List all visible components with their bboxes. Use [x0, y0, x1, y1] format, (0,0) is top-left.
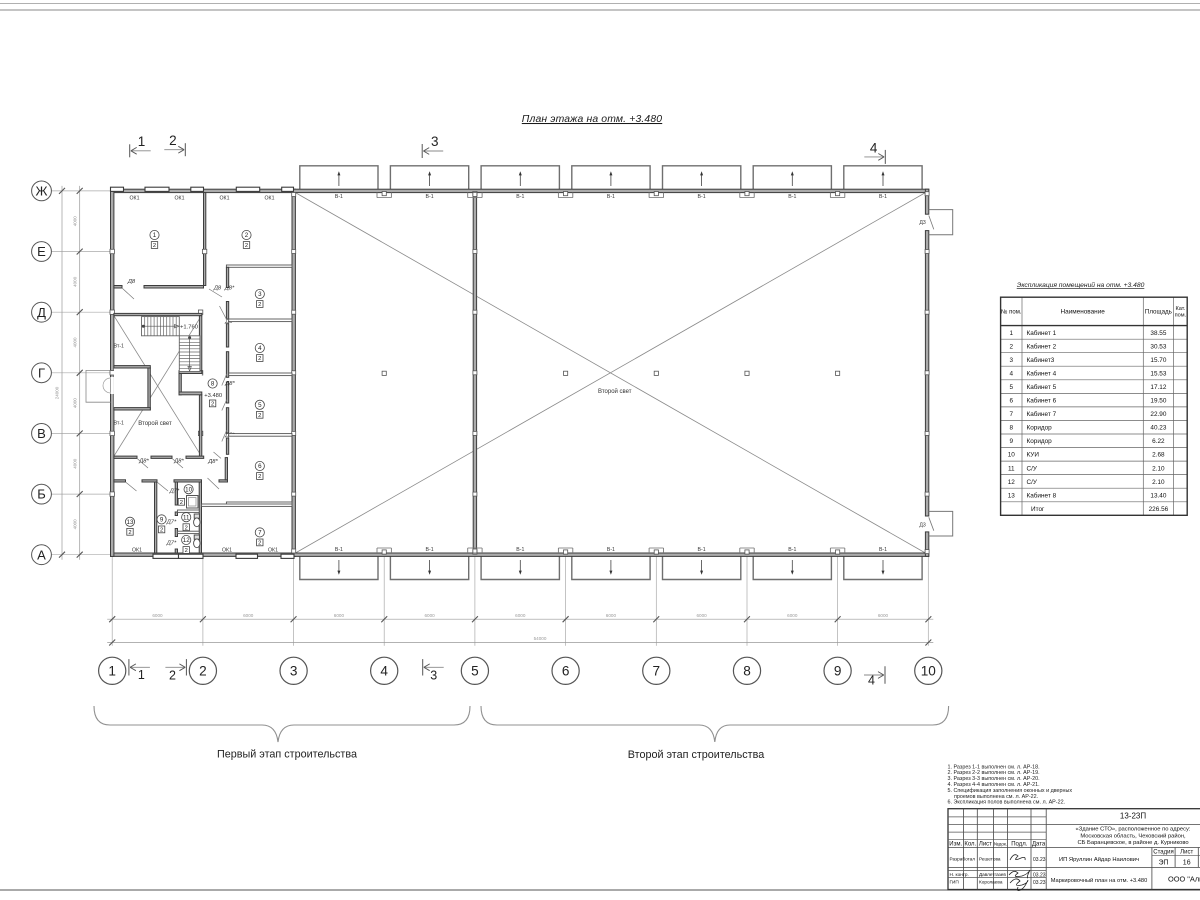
svg-text:+1.760: +1.760 — [180, 325, 198, 331]
svg-text:Второй свет: Второй свет — [138, 420, 172, 427]
svg-text:В-1: В-1 — [335, 194, 343, 200]
svg-text:4000: 4000 — [72, 276, 77, 287]
svg-text:пом.: пом. — [1175, 313, 1187, 319]
svg-text:4: 4 — [868, 674, 875, 688]
svg-text:5: 5 — [471, 664, 479, 679]
svg-text:Д7*: Д7* — [169, 489, 180, 495]
svg-text:Второй свет: Второй свет — [598, 388, 632, 395]
svg-text:Е: Е — [37, 244, 46, 259]
svg-text:Кабинет 6: Кабинет 6 — [1027, 397, 1057, 405]
svg-text:3: 3 — [290, 664, 298, 679]
svg-text:2: 2 — [258, 541, 261, 547]
svg-text:В-1: В-1 — [879, 194, 887, 200]
svg-text:4000: 4000 — [72, 458, 77, 469]
svg-text:В-1: В-1 — [698, 547, 706, 553]
svg-text:Разработал: Разработал — [950, 857, 976, 862]
svg-text:Д8: Д8 — [213, 285, 222, 291]
svg-text:Московская область, Чеховский: Московская область, Чеховский район, — [1080, 832, 1186, 839]
svg-text:9: 9 — [834, 664, 842, 679]
svg-text:16: 16 — [1183, 859, 1191, 866]
svg-text:В-1: В-1 — [879, 547, 887, 553]
svg-text:ОК1: ОК1 — [130, 195, 140, 201]
svg-text:12: 12 — [1008, 479, 1016, 486]
svg-text:«Здание СТО», расположенное по: «Здание СТО», расположенное по адресу: — [1075, 827, 1190, 833]
svg-text:В-1: В-1 — [426, 194, 434, 200]
svg-text:Кабинет 7: Кабинет 7 — [1027, 410, 1057, 418]
svg-text:2.10: 2.10 — [1152, 465, 1165, 472]
svg-text:2: 2 — [211, 402, 214, 408]
svg-text:03.23: 03.23 — [1033, 880, 1046, 886]
svg-text:В-1: В-1 — [788, 194, 796, 200]
svg-text:Д: Д — [37, 305, 46, 320]
svg-text:Вт-1: Вт-1 — [114, 421, 124, 427]
svg-text:10: 10 — [921, 664, 937, 679]
svg-text:Второй этап строительства: Второй этап строительства — [628, 749, 764, 761]
svg-text:2: 2 — [153, 243, 156, 249]
svg-text:6.22: 6.22 — [1152, 438, 1165, 445]
svg-text:2: 2 — [245, 243, 248, 249]
svg-text:№док.: №док. — [994, 841, 1007, 846]
svg-text:Коридор: Коридор — [1027, 438, 1053, 445]
svg-text:ООО "Аль: ООО "Аль — [1168, 875, 1200, 884]
svg-text:5: 5 — [1010, 384, 1014, 391]
svg-text:8: 8 — [743, 664, 751, 679]
svg-text:В-1: В-1 — [516, 194, 524, 200]
svg-text:Площадь: Площадь — [1145, 309, 1172, 316]
svg-text:Кабинет 1: Кабинет 1 — [1027, 329, 1057, 337]
svg-text:План этажа на отм. +3.480: План этажа на отм. +3.480 — [522, 114, 663, 125]
svg-text:6000: 6000 — [787, 613, 798, 618]
svg-text:3: 3 — [430, 669, 437, 683]
svg-text:Вт-1: Вт-1 — [114, 343, 124, 349]
svg-text:Решетова: Решетова — [979, 857, 1001, 862]
svg-text:4: 4 — [258, 345, 262, 352]
svg-text:2: 2 — [258, 413, 261, 419]
svg-text:Маркировочный план на отм. +3.: Маркировочный план на отм. +3.480 — [1051, 877, 1148, 884]
svg-text:11: 11 — [183, 514, 190, 521]
svg-text:2: 2 — [160, 528, 163, 534]
svg-text:2: 2 — [180, 500, 183, 506]
svg-text:6000: 6000 — [878, 613, 889, 618]
svg-text:ЭП: ЭП — [1158, 859, 1168, 866]
svg-text:10: 10 — [1008, 452, 1016, 459]
svg-text:Наименование: Наименование — [1061, 309, 1106, 316]
svg-text:4: 4 — [870, 141, 878, 156]
svg-text:Д3: Д3 — [919, 523, 926, 529]
svg-text:6000: 6000 — [152, 613, 163, 618]
svg-text:2: 2 — [1010, 343, 1014, 350]
svg-text:С/У: С/У — [1027, 479, 1038, 486]
svg-text:Давлетгазев: Давлетгазев — [979, 872, 1006, 877]
svg-text:2: 2 — [128, 530, 131, 536]
svg-text:Н. контр.: Н. контр. — [950, 872, 969, 877]
svg-text:4000: 4000 — [72, 519, 77, 530]
svg-text:Б: Б — [37, 487, 46, 502]
svg-text:В-1: В-1 — [516, 547, 524, 553]
svg-text:Коридор: Коридор — [1027, 425, 1053, 432]
svg-text:В-1: В-1 — [788, 547, 796, 553]
svg-text:Кабинет 2: Кабинет 2 — [1027, 342, 1057, 350]
svg-text:Лист: Лист — [1180, 849, 1193, 855]
svg-text:7: 7 — [258, 530, 262, 537]
svg-text:2: 2 — [169, 668, 176, 682]
svg-text:Экспликация помещений на отм.: Экспликация помещений на отм. +3.480 — [1017, 281, 1145, 289]
svg-text:4000: 4000 — [72, 216, 77, 227]
svg-text:24000: 24000 — [55, 386, 60, 399]
svg-text:ИП Яруллин Айдар Наилович: ИП Яруллин Айдар Наилович — [1059, 856, 1139, 863]
svg-text:13-23П: 13-23П — [1120, 812, 1146, 821]
svg-text:17.12: 17.12 — [1150, 384, 1166, 391]
svg-text:В-1: В-1 — [335, 547, 343, 553]
svg-text:1: 1 — [138, 134, 146, 149]
svg-text:2.10: 2.10 — [1152, 479, 1165, 486]
svg-text:Итог: Итог — [1031, 506, 1045, 513]
svg-text:Д8: Д8 — [127, 279, 136, 285]
svg-text:13.40: 13.40 — [1150, 492, 1166, 499]
svg-text:Г: Г — [38, 365, 45, 380]
svg-text:1: 1 — [108, 664, 116, 679]
svg-text:Д7*: Д7* — [166, 541, 177, 547]
svg-text:Первый этап строительства: Первый этап строительства — [217, 749, 357, 761]
svg-text:13: 13 — [1008, 492, 1016, 499]
svg-text:12: 12 — [183, 537, 190, 544]
svg-text:4000: 4000 — [72, 398, 77, 409]
svg-text:Кат.: Кат. — [1176, 306, 1186, 312]
svg-text:Д8*: Д8* — [207, 459, 218, 465]
svg-text:30.53: 30.53 — [1150, 343, 1166, 350]
svg-text:4: 4 — [380, 664, 388, 679]
svg-text:Ж: Ж — [35, 184, 47, 199]
svg-text:1: 1 — [138, 668, 145, 682]
svg-text:Лист: Лист — [979, 841, 992, 847]
svg-text:6: 6 — [1010, 398, 1014, 405]
svg-text:2: 2 — [185, 525, 188, 531]
svg-text:2: 2 — [258, 474, 261, 480]
svg-text:11: 11 — [1008, 465, 1015, 472]
svg-text:№ пом.: № пом. — [1001, 309, 1022, 316]
svg-text:6: 6 — [258, 463, 262, 470]
svg-text:Королаева: Королаева — [979, 880, 1003, 885]
svg-text:Кабинет 8: Кабинет 8 — [1027, 491, 1057, 499]
svg-text:С/У: С/У — [1027, 465, 1038, 472]
svg-text:9: 9 — [1010, 438, 1014, 445]
svg-text:2: 2 — [199, 664, 207, 679]
svg-text:2: 2 — [185, 548, 188, 554]
svg-text:КУИ: КУИ — [1027, 452, 1040, 459]
svg-text:226.56: 226.56 — [1149, 506, 1169, 513]
svg-text:2: 2 — [258, 302, 261, 308]
svg-text:38.55: 38.55 — [1150, 330, 1166, 337]
svg-text:4000: 4000 — [72, 337, 77, 348]
svg-text:10: 10 — [185, 486, 192, 493]
svg-text:Кабинет 5: Кабинет 5 — [1027, 383, 1057, 391]
svg-text:6000: 6000 — [515, 613, 526, 618]
svg-text:Д8*: Д8* — [224, 285, 235, 291]
svg-text:5: 5 — [258, 402, 262, 409]
svg-text:2: 2 — [258, 356, 261, 362]
svg-text:ОК1: ОК1 — [265, 195, 275, 201]
svg-text:8: 8 — [1010, 425, 1014, 432]
svg-text:13: 13 — [127, 519, 134, 526]
svg-text:54000: 54000 — [534, 636, 547, 641]
svg-text:03.23: 03.23 — [1033, 857, 1046, 863]
svg-text:1: 1 — [153, 232, 157, 239]
svg-text:ОК1: ОК1 — [220, 195, 230, 201]
svg-text:Д3: Д3 — [919, 220, 926, 226]
svg-text:15.53: 15.53 — [1150, 370, 1166, 377]
svg-text:Стадия: Стадия — [1153, 849, 1173, 855]
svg-text:6: 6 — [562, 664, 570, 679]
svg-text:Д7*: Д7* — [166, 520, 177, 526]
svg-text:СБ Баранцевское, в районе д. К: СБ Баранцевское, в районе д. Курниково — [1077, 839, 1188, 846]
svg-text:Кабинет3: Кабинет3 — [1027, 356, 1055, 364]
svg-text:2.68: 2.68 — [1152, 452, 1165, 459]
svg-text:Д8*: Д8* — [224, 381, 235, 387]
svg-text:19.50: 19.50 — [1150, 398, 1166, 405]
svg-text:3: 3 — [258, 291, 262, 298]
svg-text:6000: 6000 — [334, 613, 345, 618]
svg-text:ОК1: ОК1 — [132, 548, 142, 554]
svg-text:Кабинет 4: Кабинет 4 — [1027, 369, 1057, 377]
svg-text:3: 3 — [431, 134, 439, 149]
svg-text:9: 9 — [160, 517, 164, 524]
svg-text:В-1: В-1 — [426, 547, 434, 553]
svg-text:В-1: В-1 — [607, 547, 615, 553]
svg-text:Д8*: Д8* — [173, 459, 184, 465]
svg-text:ГИП: ГИП — [950, 880, 959, 885]
svg-text:ОК1: ОК1 — [175, 195, 185, 201]
svg-text:А: А — [37, 547, 46, 562]
svg-text:В-1: В-1 — [698, 194, 706, 200]
svg-text:22.90: 22.90 — [1150, 411, 1166, 418]
svg-text:2: 2 — [245, 232, 249, 239]
svg-text:В: В — [37, 426, 46, 441]
svg-text:8: 8 — [211, 381, 215, 388]
svg-text:6. Экспликация полов выполнена: 6. Экспликация полов выполнена см. л. АР… — [948, 800, 1066, 806]
svg-text:+3.480: +3.480 — [204, 393, 222, 399]
svg-text:3: 3 — [1010, 357, 1014, 364]
svg-text:6000: 6000 — [424, 613, 435, 618]
svg-text:6000: 6000 — [696, 613, 707, 618]
svg-text:Изм.: Изм. — [949, 841, 962, 847]
svg-text:4: 4 — [1010, 370, 1014, 377]
svg-text:ОК1: ОК1 — [268, 548, 278, 554]
svg-text:Кол.: Кол. — [964, 841, 976, 847]
svg-text:Д8*: Д8* — [138, 459, 149, 465]
svg-text:Дата: Дата — [1032, 841, 1046, 847]
svg-text:Подл.: Подл. — [1011, 841, 1028, 847]
svg-text:03.23: 03.23 — [1033, 873, 1046, 879]
svg-text:6000: 6000 — [606, 613, 617, 618]
svg-text:7: 7 — [653, 664, 661, 679]
svg-text:15.70: 15.70 — [1150, 357, 1166, 364]
svg-text:В-1: В-1 — [607, 194, 615, 200]
svg-text:2: 2 — [169, 133, 177, 148]
svg-text:40.23: 40.23 — [1150, 425, 1166, 432]
svg-text:ОК1: ОК1 — [222, 548, 232, 554]
svg-text:6000: 6000 — [243, 613, 254, 618]
svg-text:7: 7 — [1010, 411, 1014, 418]
svg-text:1: 1 — [1010, 330, 1014, 337]
